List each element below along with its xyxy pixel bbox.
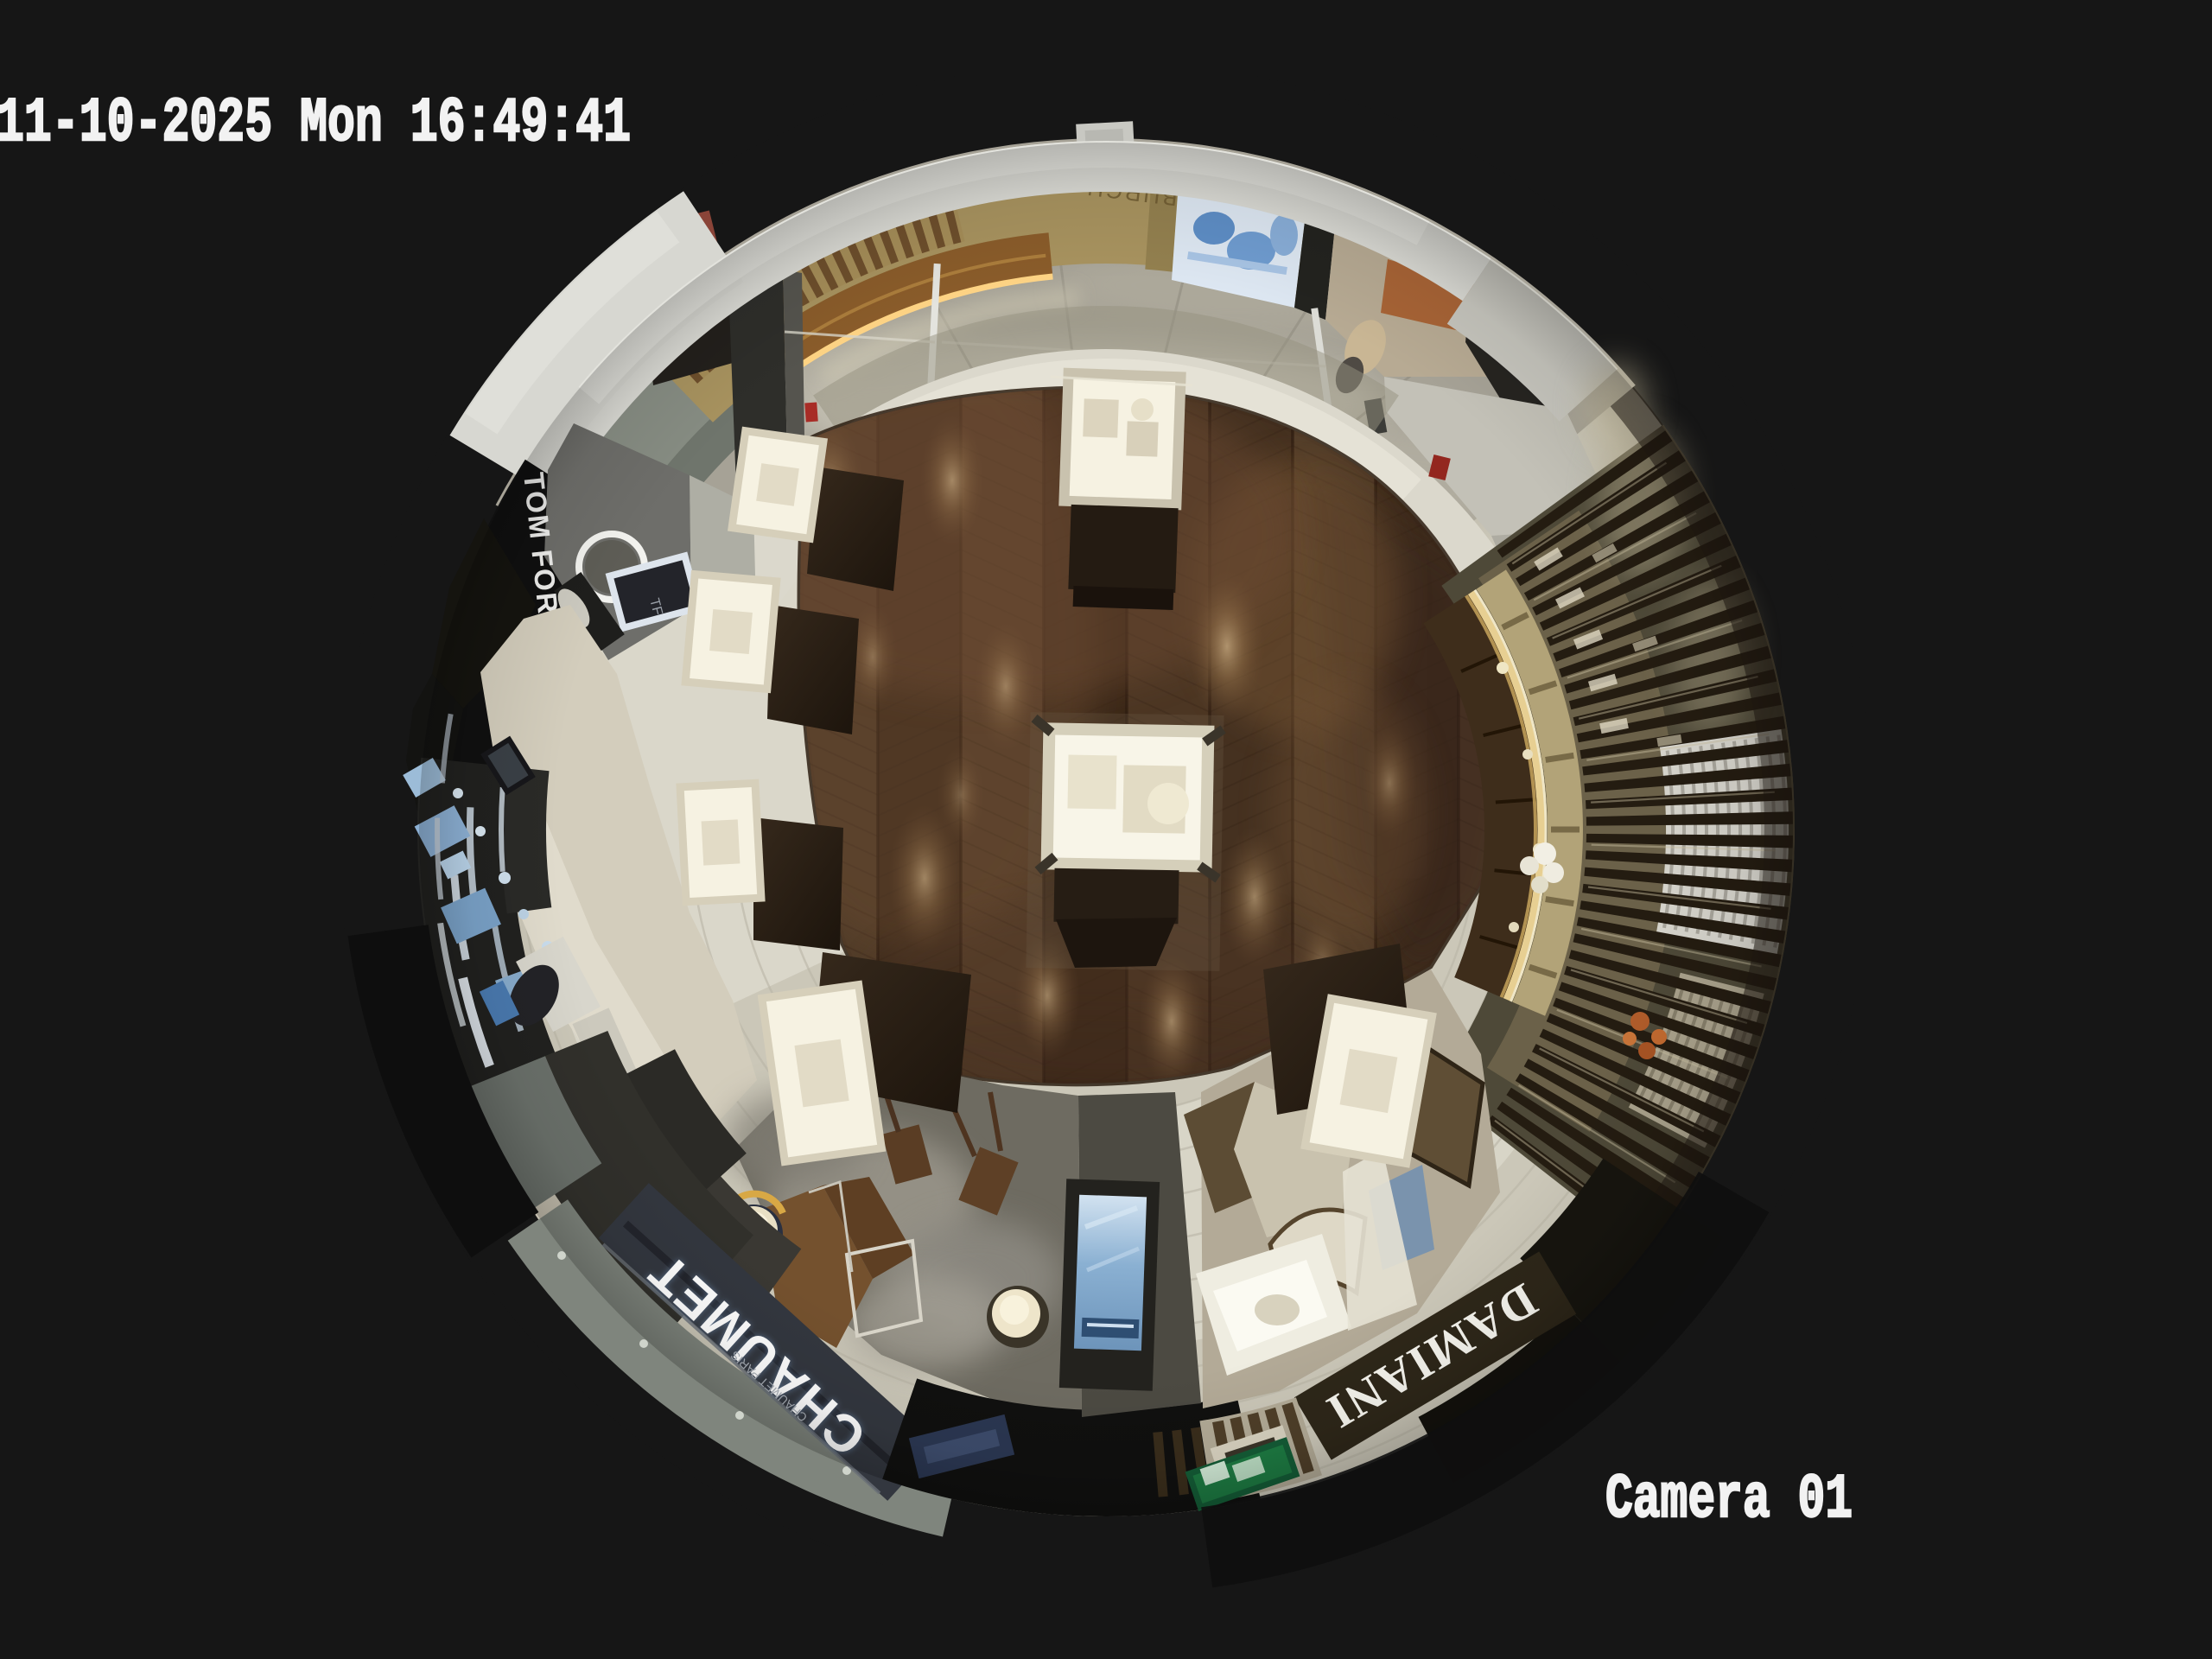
svg-text:11-10-2025 Mon 16:49:41: 11-10-2025 Mon 16:49:41 — [0, 88, 631, 159]
svg-text:Camera 01: Camera 01 — [1605, 1465, 1853, 1535]
